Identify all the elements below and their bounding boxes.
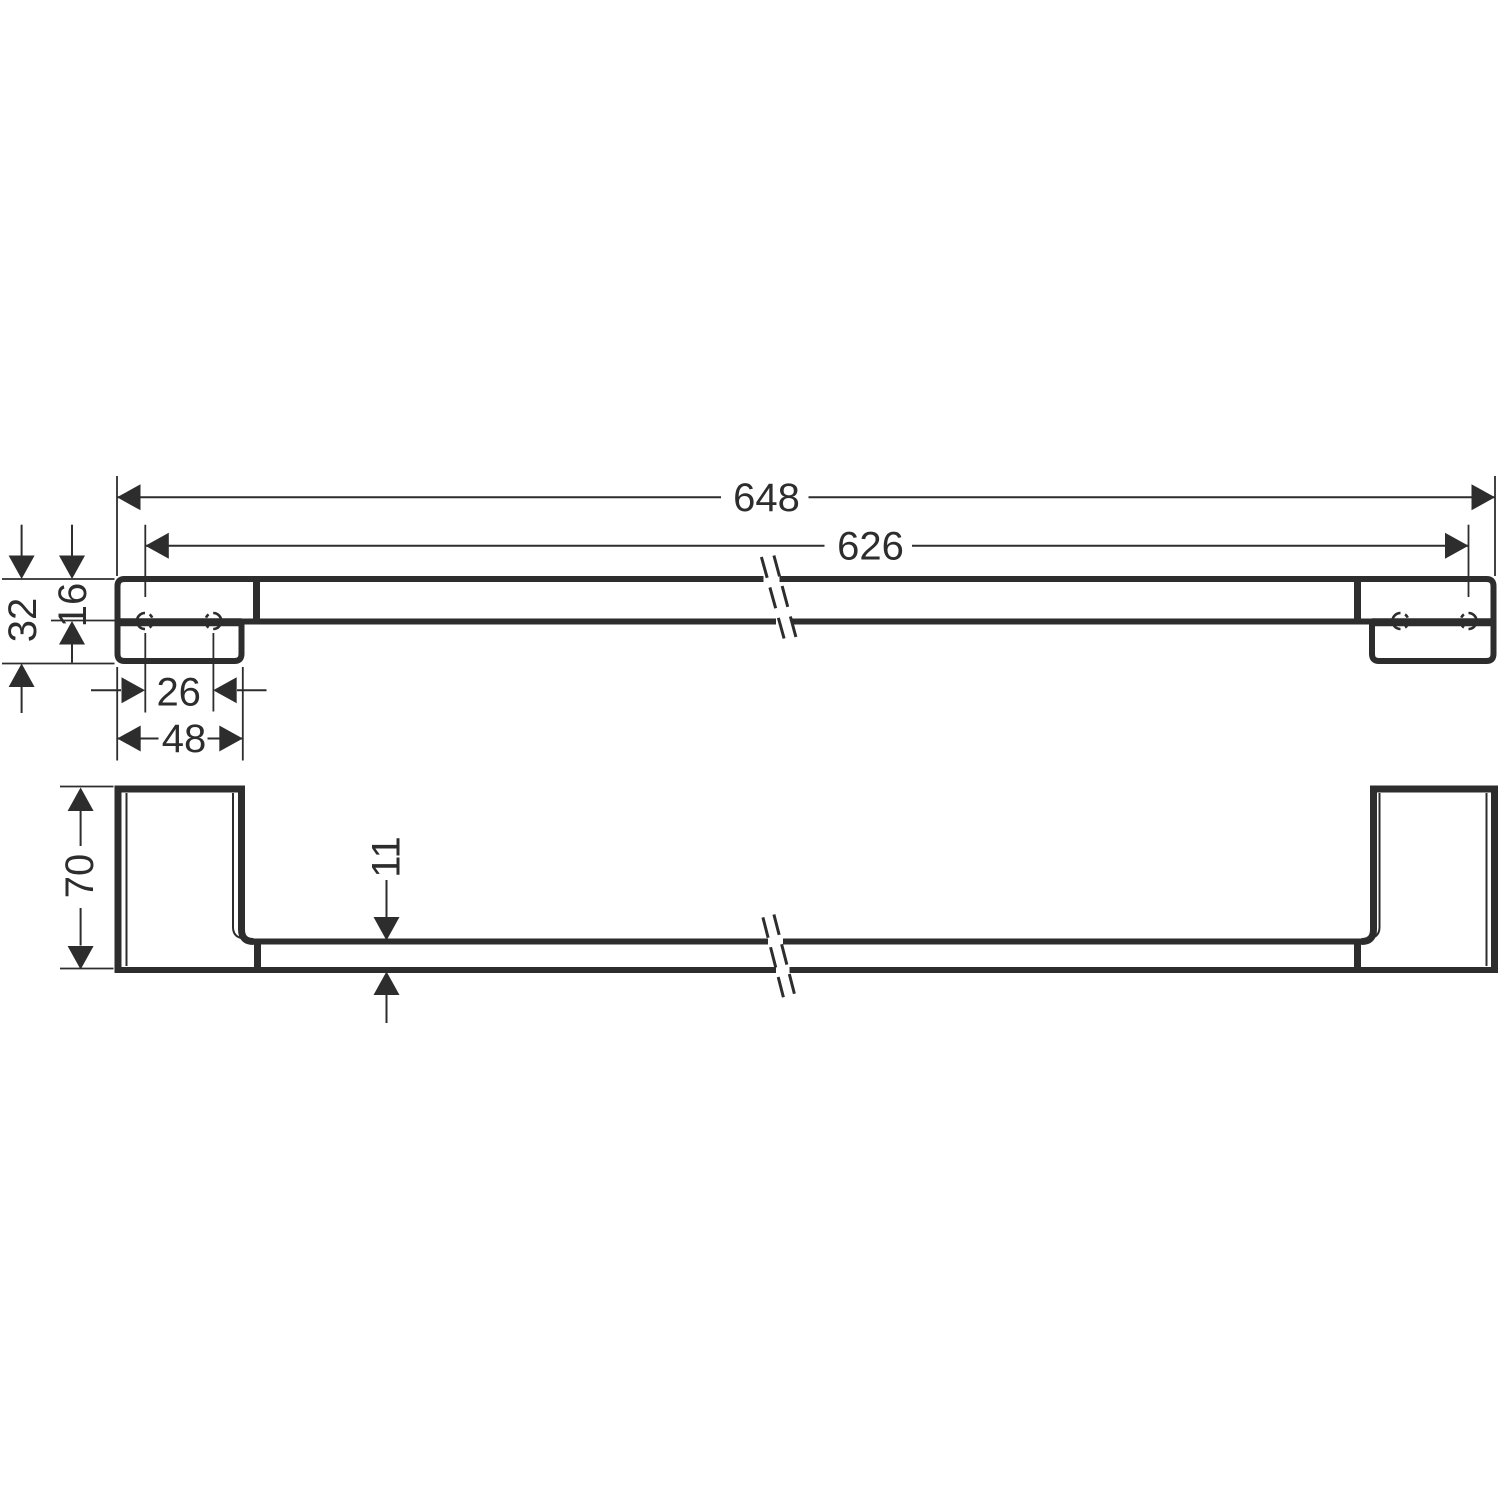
svg-text:48: 48 [162,717,207,761]
svg-text:16: 16 [51,583,95,628]
svg-text:26: 26 [156,671,201,715]
svg-text:648: 648 [733,476,800,520]
svg-text:11: 11 [365,836,409,878]
svg-text:70: 70 [58,854,102,899]
svg-text:32: 32 [1,598,45,643]
svg-text:626: 626 [837,525,904,569]
